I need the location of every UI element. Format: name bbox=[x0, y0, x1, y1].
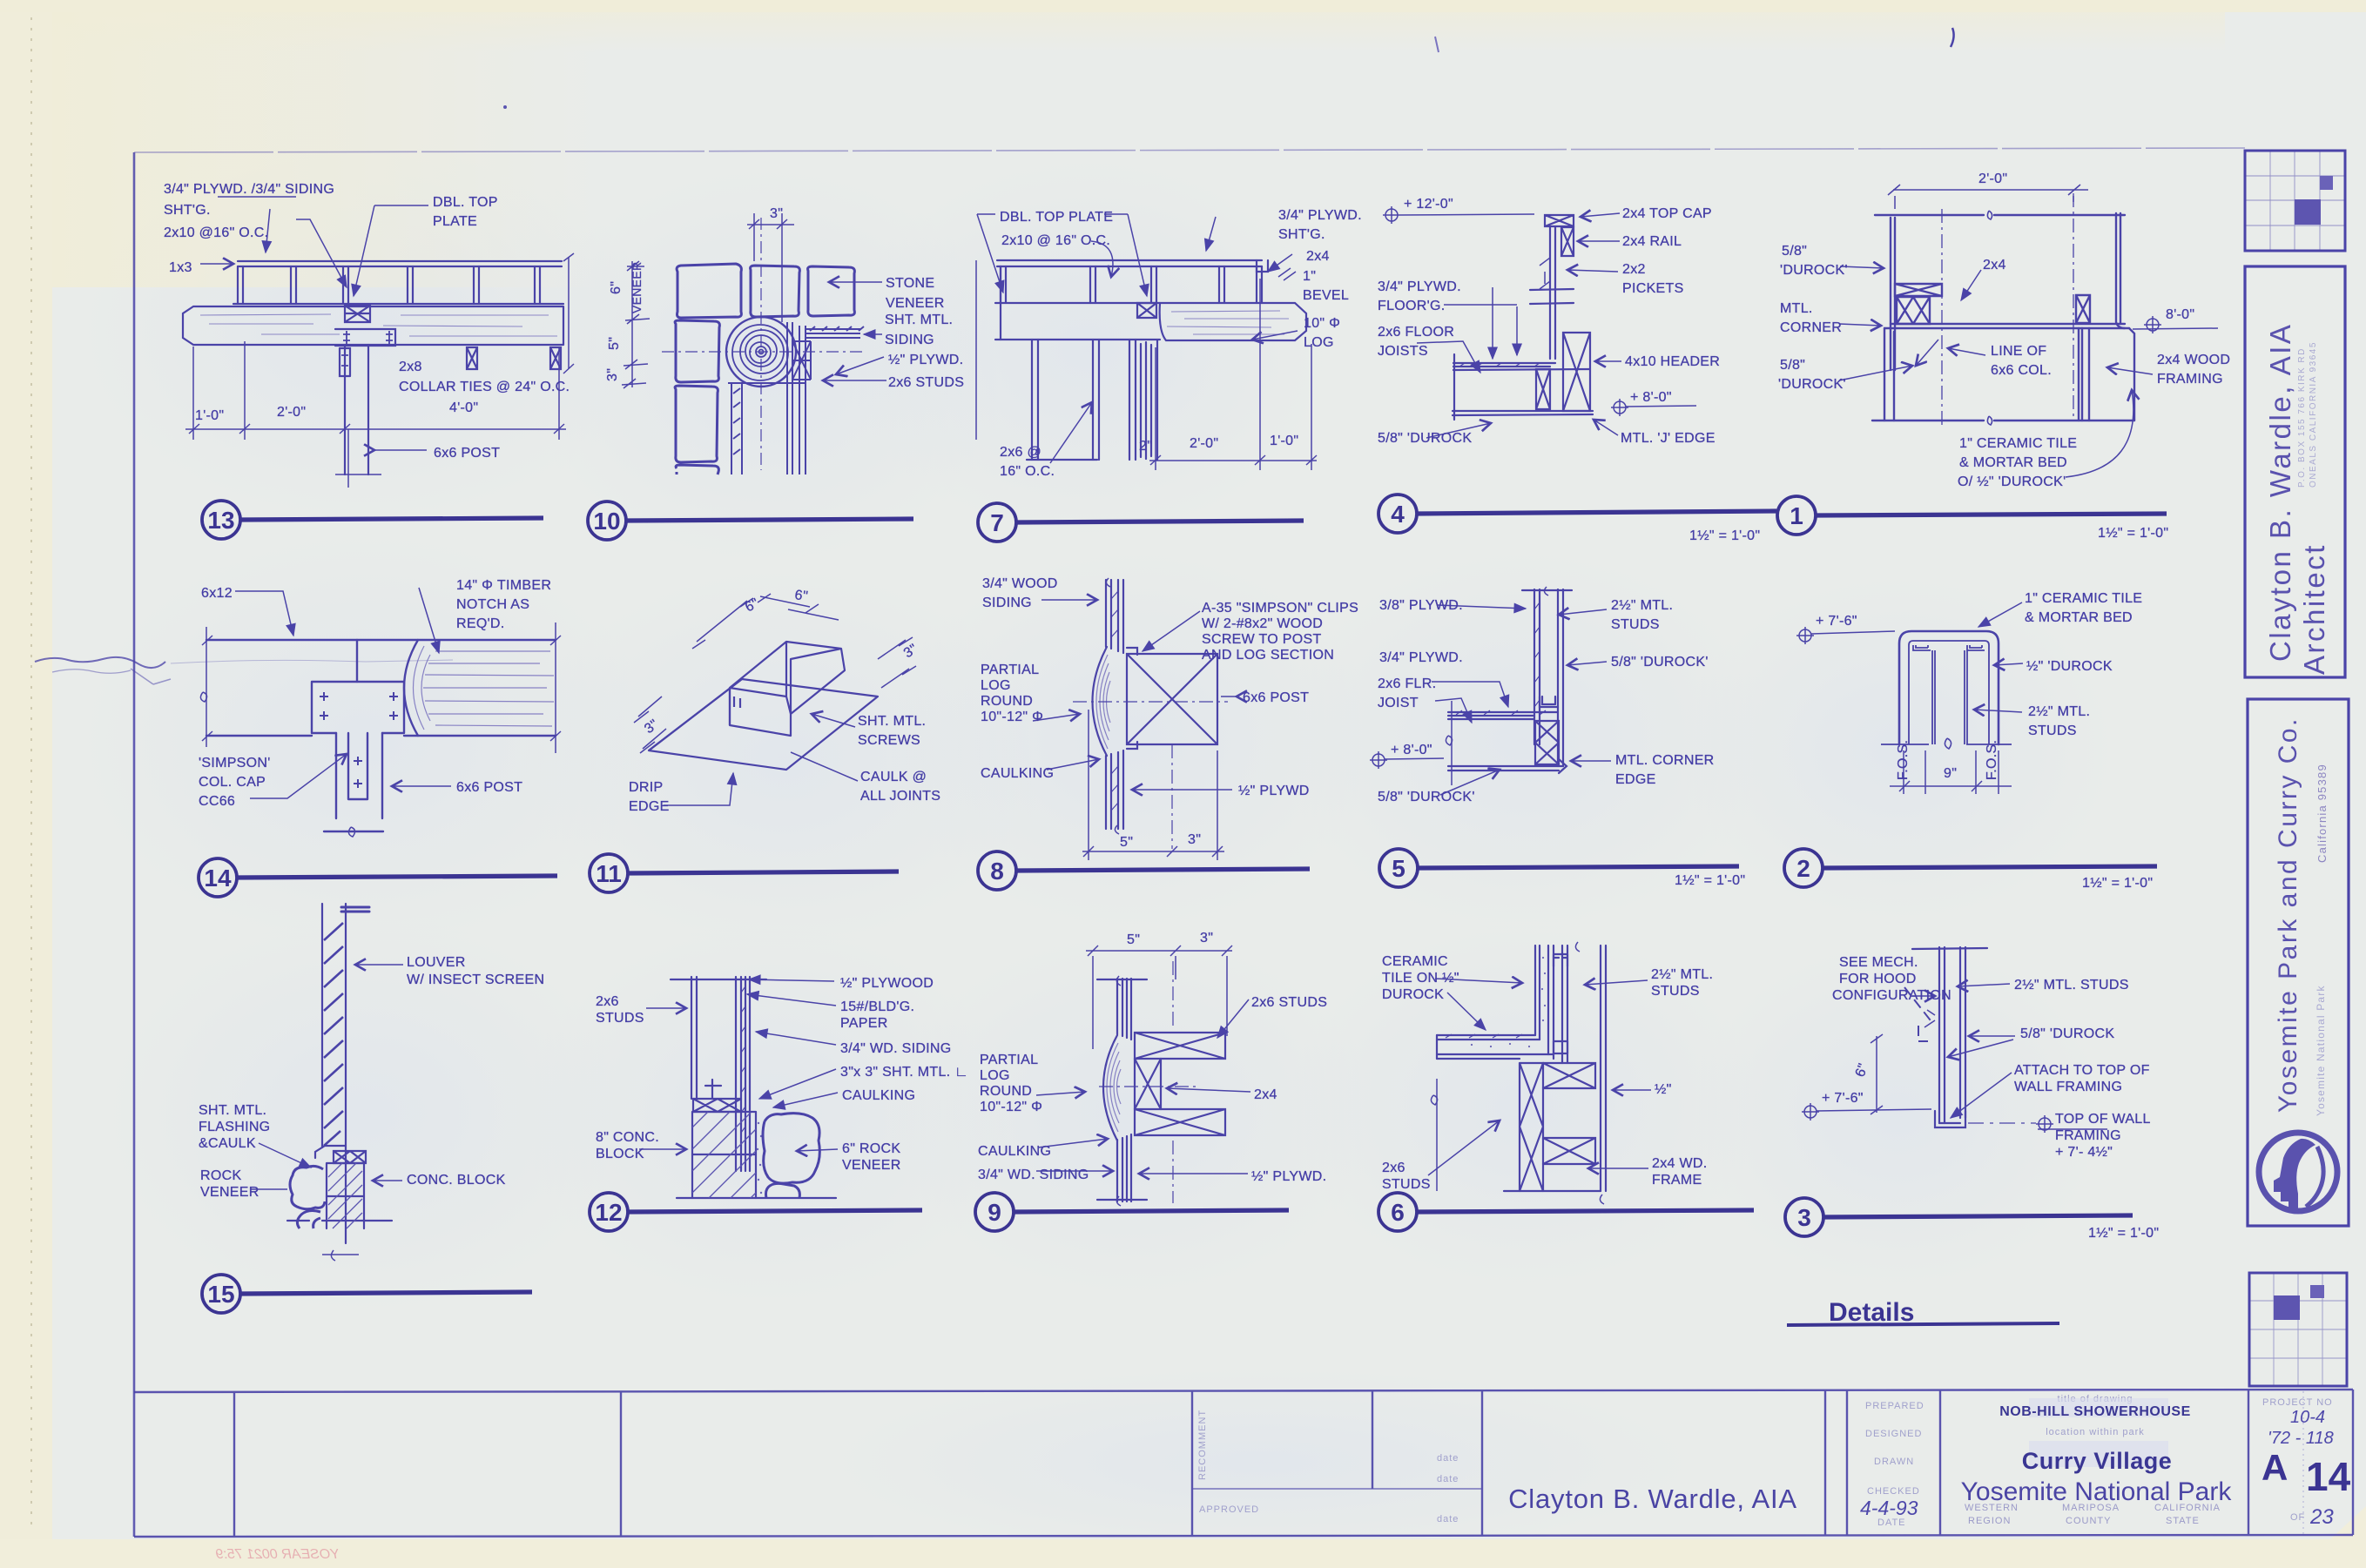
svg-text:½" PLYWD.: ½" PLYWD. bbox=[1251, 1169, 1326, 1184]
svg-text:3/4" PLYWD.: 3/4" PLYWD. bbox=[1278, 208, 1362, 223]
svg-text:CAULKING: CAULKING bbox=[842, 1088, 915, 1103]
svg-text:NOB-HILL SHOWERHOUSE: NOB-HILL SHOWERHOUSE bbox=[1999, 1404, 2190, 1419]
svg-text:3: 3 bbox=[1797, 1204, 1811, 1231]
svg-text:11: 11 bbox=[596, 860, 622, 887]
svg-text:MTL.: MTL. bbox=[1780, 301, 1813, 316]
svg-text:F.O.S.: F.O.S. bbox=[1985, 740, 1999, 780]
svg-text:FLOOR'G.: FLOOR'G. bbox=[1378, 299, 1445, 313]
svg-text:DBL. TOP PLATE: DBL. TOP PLATE bbox=[1000, 210, 1113, 225]
svg-text:O/ ½" 'DUROCK': O/ ½" 'DUROCK' bbox=[1958, 474, 2066, 489]
svg-text:2x6: 2x6 bbox=[596, 994, 619, 1009]
svg-text:5: 5 bbox=[1392, 855, 1405, 882]
svg-text:1½" = 1'-0": 1½" = 1'-0" bbox=[2082, 876, 2153, 891]
svg-text:DRIP: DRIP bbox=[629, 780, 663, 795]
svg-text:+ 7'- 4½": + 7'- 4½" bbox=[2055, 1145, 2113, 1160]
svg-text:2x4 WD.: 2x4 WD. bbox=[1652, 1156, 1707, 1171]
svg-text:½" PLYWD: ½" PLYWD bbox=[1238, 784, 1310, 798]
svg-text:OF: OF bbox=[2290, 1512, 2305, 1523]
svg-text:A: A bbox=[2262, 1447, 2288, 1488]
svg-text:FLASHING: FLASHING bbox=[199, 1120, 270, 1134]
svg-text:3": 3" bbox=[1188, 832, 1201, 847]
svg-text:PARTIAL: PARTIAL bbox=[981, 663, 1039, 677]
svg-text:2x4 WOOD: 2x4 WOOD bbox=[2157, 353, 2230, 367]
svg-text:SCREW TO POST: SCREW TO POST bbox=[1202, 632, 1322, 647]
svg-text:California 95389: California 95389 bbox=[2315, 764, 2329, 863]
svg-text:SEE MECH.: SEE MECH. bbox=[1839, 955, 1918, 970]
svg-text:2x6 @: 2x6 @ bbox=[1000, 445, 1041, 460]
svg-text:5/8" 'DUROCK: 5/8" 'DUROCK bbox=[1378, 431, 1472, 446]
svg-text:15#/BLD'G.: 15#/BLD'G. bbox=[840, 999, 914, 1014]
svg-text:2x6 FLOOR: 2x6 FLOOR bbox=[1378, 325, 1454, 340]
svg-text:6x6 POST: 6x6 POST bbox=[1243, 690, 1309, 705]
svg-text:PICKETS: PICKETS bbox=[1622, 281, 1684, 296]
svg-text:12: 12 bbox=[595, 1199, 622, 1226]
svg-text:1" CERAMIC TILE: 1" CERAMIC TILE bbox=[2025, 591, 2142, 606]
svg-text:TILE ON ½": TILE ON ½" bbox=[1382, 971, 1459, 986]
svg-text:MARIPOSA: MARIPOSA bbox=[2062, 1503, 2120, 1513]
svg-text:1" CERAMIC TILE: 1" CERAMIC TILE bbox=[1959, 436, 2077, 451]
svg-text:3/4" WD. SIDING: 3/4" WD. SIDING bbox=[840, 1041, 952, 1056]
svg-text:SHT. MTL.: SHT. MTL. bbox=[885, 313, 953, 327]
svg-text:SIDING: SIDING bbox=[982, 596, 1032, 610]
svg-text:Architect: Architect bbox=[2298, 543, 2330, 675]
svg-text:YOSEAR 0021 75:9: YOSEAR 0021 75:9 bbox=[216, 1547, 340, 1562]
svg-text:2x6: 2x6 bbox=[1382, 1161, 1405, 1175]
svg-text:½": ½" bbox=[1655, 1082, 1672, 1097]
svg-text:1: 1 bbox=[1790, 502, 1803, 529]
svg-text:'DUROCK': 'DUROCK' bbox=[1778, 377, 1846, 392]
svg-text:ATTACH TO TOP OF: ATTACH TO TOP OF bbox=[2014, 1063, 2150, 1078]
svg-text:10: 10 bbox=[593, 508, 620, 535]
svg-text:15: 15 bbox=[207, 1281, 234, 1308]
svg-text:COLLAR TIES @ 24" O.C.: COLLAR TIES @ 24" O.C. bbox=[399, 380, 570, 394]
svg-text:WALL FRAMING: WALL FRAMING bbox=[2014, 1080, 2122, 1094]
svg-text:3/4" PLYWD.: 3/4" PLYWD. bbox=[1378, 279, 1461, 294]
svg-text:RECOMMENT: RECOMMENT bbox=[1197, 1410, 1208, 1480]
svg-text:A-35 "SIMPSON" CLIPS: A-35 "SIMPSON" CLIPS bbox=[1202, 601, 1358, 616]
svg-text:2": 2" bbox=[1139, 439, 1152, 454]
svg-text:LOG: LOG bbox=[1304, 335, 1334, 350]
svg-text:ROUND: ROUND bbox=[981, 694, 1033, 709]
svg-text:SIDING: SIDING bbox=[885, 333, 934, 347]
svg-text:1½" = 1'-0": 1½" = 1'-0" bbox=[1689, 528, 1760, 543]
svg-text:FRAMING: FRAMING bbox=[2157, 372, 2223, 387]
svg-text:2x4: 2x4 bbox=[1983, 258, 2006, 273]
svg-text:CONFIGURATION: CONFIGURATION bbox=[1832, 988, 1951, 1003]
svg-text:STUDS: STUDS bbox=[596, 1011, 644, 1026]
svg-text:Clayton B. Wardle, AIA: Clayton B. Wardle, AIA bbox=[2264, 323, 2296, 662]
svg-text:1x3: 1x3 bbox=[169, 260, 192, 275]
svg-text:STUDS: STUDS bbox=[2028, 723, 2077, 738]
svg-text:2x6 STUDS: 2x6 STUDS bbox=[1251, 995, 1327, 1010]
svg-text:5/8" 'DUROCK: 5/8" 'DUROCK bbox=[2020, 1026, 2114, 1041]
svg-text:MTL. CORNER: MTL. CORNER bbox=[1615, 753, 1715, 768]
svg-text:AND LOG SECTION: AND LOG SECTION bbox=[1202, 648, 1334, 663]
svg-text:14: 14 bbox=[2306, 1454, 2351, 1499]
svg-text:date: date bbox=[1437, 1474, 1459, 1484]
svg-text:4'-0": 4'-0" bbox=[449, 400, 478, 415]
svg-text:SHT. MTL.: SHT. MTL. bbox=[858, 714, 926, 729]
svg-text:2'-0": 2'-0" bbox=[277, 405, 306, 420]
svg-text:STONE: STONE bbox=[886, 276, 934, 291]
svg-text:CAULKING: CAULKING bbox=[978, 1144, 1051, 1159]
svg-text:Details: Details bbox=[1829, 1298, 1914, 1327]
svg-text:2'-0": 2'-0" bbox=[1978, 172, 2007, 186]
svg-text:3": 3" bbox=[1200, 931, 1213, 946]
svg-text:2x8: 2x8 bbox=[399, 360, 422, 374]
svg-text:CHECKED: CHECKED bbox=[1867, 1486, 1920, 1497]
svg-text:CC66: CC66 bbox=[199, 794, 235, 809]
svg-text:3"x 3" SHT. MTL. ∟: 3"x 3" SHT. MTL. ∟ bbox=[840, 1065, 968, 1080]
svg-text:Yosemite Park and Curry Co.: Yosemite Park and Curry Co. bbox=[2274, 717, 2302, 1113]
svg-text:F.O.S.: F.O.S. bbox=[1896, 740, 1911, 780]
svg-text:+ 8'-0": + 8'-0" bbox=[1391, 743, 1432, 757]
svg-text:'DUROCK': 'DUROCK' bbox=[1780, 263, 1848, 278]
svg-text:16" O.C.: 16" O.C. bbox=[1000, 464, 1055, 479]
svg-text:6": 6" bbox=[793, 588, 808, 604]
svg-text:Curry Village: Curry Village bbox=[2022, 1448, 2173, 1474]
svg-text:CAULK @: CAULK @ bbox=[860, 770, 927, 784]
svg-text:+ 7'-6": + 7'-6" bbox=[1822, 1091, 1864, 1106]
svg-text:W/ INSECT SCREEN: W/ INSECT SCREEN bbox=[407, 972, 544, 987]
svg-text:13: 13 bbox=[207, 507, 234, 534]
svg-text:PROJECT NO: PROJECT NO bbox=[2262, 1397, 2333, 1408]
svg-text:+ 7'-6": + 7'-6" bbox=[1816, 614, 1857, 629]
svg-text:3/4" PLYWD.: 3/4" PLYWD. bbox=[1379, 650, 1463, 665]
svg-text:PAPER: PAPER bbox=[840, 1016, 888, 1031]
svg-text:ONEALS CALIFORNIA 93645: ONEALS CALIFORNIA 93645 bbox=[2309, 341, 2318, 488]
svg-text:FOR HOOD: FOR HOOD bbox=[1839, 972, 1917, 986]
svg-text:CALIFORNIA: CALIFORNIA bbox=[2154, 1503, 2221, 1513]
svg-text:6": 6" bbox=[609, 281, 624, 294]
svg-text:DBL. TOP: DBL. TOP bbox=[433, 195, 498, 210]
svg-text:6" ROCK: 6" ROCK bbox=[842, 1141, 900, 1156]
svg-text:4x10 HEADER: 4x10 HEADER bbox=[1625, 354, 1720, 369]
svg-text:10"-12" Φ: 10"-12" Φ bbox=[981, 710, 1043, 724]
svg-text:2x4 TOP CAP: 2x4 TOP CAP bbox=[1622, 206, 1712, 221]
svg-text:DRAWN: DRAWN bbox=[1874, 1457, 1914, 1467]
svg-text:SHT'G.: SHT'G. bbox=[164, 203, 211, 218]
svg-text:½" 'DUROCK: ½" 'DUROCK bbox=[2026, 659, 2113, 674]
svg-text:VENEER: VENEER bbox=[200, 1185, 260, 1200]
svg-text:MTL. 'J' EDGE: MTL. 'J' EDGE bbox=[1621, 431, 1716, 446]
svg-text:6: 6 bbox=[1391, 1199, 1405, 1226]
svg-text:+ 8'-0": + 8'-0" bbox=[1630, 390, 1672, 405]
svg-text:2½" MTL. STUDS: 2½" MTL. STUDS bbox=[2014, 978, 2129, 993]
svg-text:JOIST: JOIST bbox=[1378, 696, 1419, 710]
svg-text:3/8" PLYWD.: 3/8" PLYWD. bbox=[1379, 598, 1463, 613]
svg-text:STUDS: STUDS bbox=[1611, 617, 1660, 632]
svg-text:4: 4 bbox=[1391, 501, 1405, 528]
svg-text:BLOCK: BLOCK bbox=[596, 1147, 644, 1161]
svg-text:3/4" PLYWD. /3/4" SIDING: 3/4" PLYWD. /3/4" SIDING bbox=[164, 182, 334, 197]
svg-text:6x12: 6x12 bbox=[201, 586, 233, 601]
svg-text:10"-12" Φ: 10"-12" Φ bbox=[980, 1100, 1042, 1114]
svg-text:LINE OF: LINE OF bbox=[1991, 344, 2046, 359]
svg-text:DUROCK: DUROCK bbox=[1382, 987, 1444, 1002]
svg-text:1½" = 1'-0": 1½" = 1'-0" bbox=[1675, 873, 1745, 888]
svg-text:4-4-93: 4-4-93 bbox=[1860, 1497, 1918, 1519]
svg-text:2x6 FLR.: 2x6 FLR. bbox=[1378, 676, 1436, 691]
svg-text:ALL JOINTS: ALL JOINTS bbox=[860, 789, 940, 804]
svg-text:6x6 POST: 6x6 POST bbox=[456, 780, 522, 795]
svg-text:1": 1" bbox=[1303, 269, 1316, 284]
svg-text:REQ'D.: REQ'D. bbox=[456, 616, 505, 631]
svg-text:1½" = 1'-0": 1½" = 1'-0" bbox=[2098, 526, 2168, 541]
svg-text:NOTCH AS: NOTCH AS bbox=[456, 597, 529, 612]
svg-text:2½" MTL.: 2½" MTL. bbox=[1651, 967, 1713, 982]
svg-text:location within park: location within park bbox=[2046, 1427, 2145, 1437]
svg-text:6x6 POST: 6x6 POST bbox=[434, 446, 500, 461]
svg-text:BEVEL: BEVEL bbox=[1303, 288, 1349, 303]
svg-text:STUDS: STUDS bbox=[1651, 984, 1700, 999]
svg-text:STATE: STATE bbox=[2166, 1516, 2200, 1526]
svg-text:7: 7 bbox=[990, 509, 1004, 536]
svg-text:2x4: 2x4 bbox=[1306, 249, 1330, 264]
svg-text:8'-0": 8'-0" bbox=[2166, 307, 2194, 322]
svg-text:2x2: 2x2 bbox=[1622, 262, 1646, 277]
svg-text:EDGE: EDGE bbox=[629, 799, 670, 814]
svg-text:1½" = 1'-0": 1½" = 1'-0" bbox=[2088, 1226, 2159, 1241]
svg-text:& MORTAR BED: & MORTAR BED bbox=[1959, 455, 2067, 470]
svg-text:23: 23 bbox=[2309, 1505, 2334, 1529]
svg-text:PARTIAL: PARTIAL bbox=[980, 1053, 1038, 1067]
svg-text:FRAMING: FRAMING bbox=[2055, 1128, 2121, 1143]
svg-text:8" CONC.: 8" CONC. bbox=[596, 1130, 659, 1145]
svg-text:FRAME: FRAME bbox=[1652, 1173, 1702, 1188]
svg-text:VENEER: VENEER bbox=[842, 1158, 901, 1173]
svg-text:JOISTS: JOISTS bbox=[1378, 344, 1428, 359]
svg-text:WESTERN: WESTERN bbox=[1965, 1503, 2019, 1513]
svg-text:+ 12'-0": + 12'-0" bbox=[1404, 197, 1453, 212]
svg-text:DESIGNED: DESIGNED bbox=[1865, 1429, 1922, 1439]
svg-text:LOUVER: LOUVER bbox=[407, 955, 466, 970]
svg-text:6x6 COL.: 6x6 COL. bbox=[1991, 363, 2052, 378]
svg-text:COUNTY: COUNTY bbox=[2066, 1516, 2111, 1526]
svg-text:2½" MTL.: 2½" MTL. bbox=[2028, 704, 2090, 719]
svg-text:ROUND: ROUND bbox=[980, 1084, 1032, 1099]
svg-text:VENEER: VENEER bbox=[630, 262, 644, 313]
svg-text:3/4" WD. SIDING: 3/4" WD. SIDING bbox=[978, 1168, 1089, 1182]
svg-text:5": 5" bbox=[607, 337, 622, 350]
svg-text:2x6 STUDS: 2x6 STUDS bbox=[888, 375, 964, 390]
svg-text:10-4: 10-4 bbox=[2290, 1408, 2325, 1427]
svg-text:10" Φ: 10" Φ bbox=[1304, 316, 1340, 331]
svg-text:5/8" 'DUROCK': 5/8" 'DUROCK' bbox=[1378, 790, 1475, 804]
svg-text:PLATE: PLATE bbox=[433, 214, 477, 229]
svg-text:2: 2 bbox=[1796, 855, 1810, 882]
svg-text:5/8": 5/8" bbox=[1780, 358, 1805, 373]
svg-text:2'-0": 2'-0" bbox=[1190, 436, 1218, 451]
svg-text:2x4 RAIL: 2x4 RAIL bbox=[1622, 234, 1682, 249]
svg-text:½" PLYWOOD: ½" PLYWOOD bbox=[840, 976, 934, 991]
svg-text:EDGE: EDGE bbox=[1615, 772, 1656, 787]
svg-text:9: 9 bbox=[988, 1199, 1001, 1226]
svg-text:1'-0": 1'-0" bbox=[1270, 434, 1298, 448]
svg-text:W/ 2-#8x2" WOOD: W/ 2-#8x2" WOOD bbox=[1202, 616, 1323, 631]
svg-text:2½" MTL.: 2½" MTL. bbox=[1611, 598, 1673, 613]
svg-text:5/8" 'DUROCK': 5/8" 'DUROCK' bbox=[1611, 655, 1709, 670]
svg-text:½" PLYWD.: ½" PLYWD. bbox=[888, 353, 963, 367]
svg-text:'72 - 118: '72 - 118 bbox=[2268, 1429, 2334, 1448]
svg-text:P.O. BOX 155 766 KIRK RD: P.O. BOX 155 766 KIRK RD bbox=[2297, 347, 2307, 488]
svg-text:3/4" WOOD: 3/4" WOOD bbox=[982, 576, 1058, 591]
svg-text:SHT'G.: SHT'G. bbox=[1278, 227, 1325, 242]
svg-text:3": 3" bbox=[605, 368, 620, 381]
svg-text:2x4: 2x4 bbox=[1254, 1087, 1277, 1102]
svg-text:SCREWS: SCREWS bbox=[858, 733, 920, 748]
svg-text:TOP OF WALL: TOP OF WALL bbox=[2055, 1112, 2151, 1127]
svg-text:1'-0": 1'-0" bbox=[195, 408, 224, 423]
svg-text:& MORTAR BED: & MORTAR BED bbox=[2025, 610, 2133, 625]
svg-text:14: 14 bbox=[204, 865, 232, 892]
svg-text:14" Φ TIMBER: 14" Φ TIMBER bbox=[456, 578, 551, 593]
svg-text:CAULKING: CAULKING bbox=[981, 766, 1054, 781]
svg-text:'SIMPSON': 'SIMPSON' bbox=[199, 756, 271, 771]
svg-text:LOG: LOG bbox=[981, 678, 1011, 693]
svg-text:2x10 @ 16" O.C.: 2x10 @ 16" O.C. bbox=[1001, 233, 1110, 248]
svg-text:LOG: LOG bbox=[980, 1068, 1010, 1083]
svg-text:3": 3" bbox=[770, 206, 783, 221]
svg-text:CORNER: CORNER bbox=[1780, 320, 1842, 335]
svg-text:8: 8 bbox=[990, 858, 1004, 885]
svg-text:Clayton B. Wardle, AIA: Clayton B. Wardle, AIA bbox=[1508, 1484, 1797, 1514]
svg-text:date: date bbox=[1437, 1453, 1459, 1464]
svg-text:PREPARED: PREPARED bbox=[1865, 1401, 1924, 1411]
svg-text:&CAULK: &CAULK bbox=[199, 1136, 256, 1151]
svg-text:REGION: REGION bbox=[1968, 1516, 2011, 1526]
svg-text:STUDS: STUDS bbox=[1382, 1177, 1431, 1192]
svg-text:date: date bbox=[1437, 1514, 1459, 1524]
svg-text:Yosemite National Park: Yosemite National Park bbox=[2315, 985, 2327, 1116]
svg-text:SHT. MTL.: SHT. MTL. bbox=[199, 1103, 266, 1118]
svg-text:CERAMIC: CERAMIC bbox=[1382, 954, 1448, 969]
svg-text:5/8": 5/8" bbox=[1782, 244, 1807, 259]
svg-text:9": 9" bbox=[1944, 766, 1957, 781]
svg-text:APPROVED: APPROVED bbox=[1199, 1504, 1259, 1515]
svg-text:5": 5" bbox=[1127, 932, 1140, 947]
svg-text:VENEER: VENEER bbox=[886, 296, 945, 311]
svg-text:5": 5" bbox=[1120, 835, 1133, 850]
svg-text:ROCK: ROCK bbox=[200, 1168, 241, 1183]
svg-text:COL. CAP: COL. CAP bbox=[199, 775, 266, 790]
svg-text:2x10 @16" O.C.: 2x10 @16" O.C. bbox=[164, 225, 268, 240]
svg-text:CONC. BLOCK: CONC. BLOCK bbox=[407, 1173, 506, 1188]
